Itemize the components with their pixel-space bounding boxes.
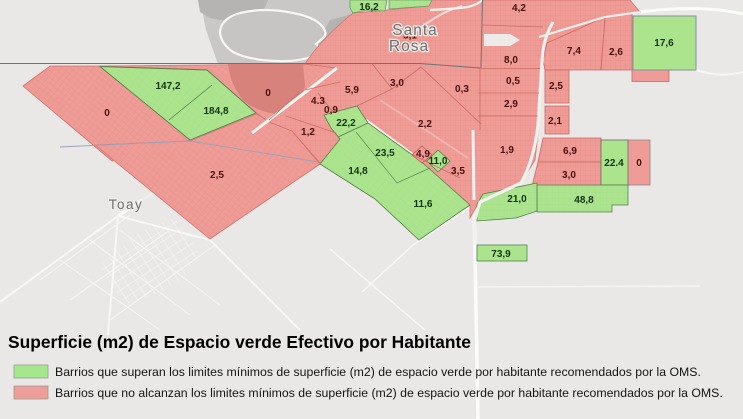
svg-text:184,8: 184,8 (203, 106, 228, 117)
svg-text:23,5: 23,5 (375, 148, 395, 159)
svg-text:5,9: 5,9 (345, 85, 359, 96)
svg-text:73,9: 73,9 (491, 249, 511, 260)
svg-text:11,6: 11,6 (414, 199, 433, 210)
svg-text:2,5: 2,5 (210, 170, 224, 181)
svg-text:0,3: 0,3 (455, 84, 469, 95)
svg-text:Santa: Santa (392, 22, 438, 39)
svg-text:0,9: 0,9 (324, 105, 338, 116)
svg-text:14,8: 14,8 (348, 166, 368, 177)
svg-text:3,5: 3,5 (451, 166, 465, 177)
svg-text:147,2: 147,2 (155, 81, 180, 92)
svg-text:6,9: 6,9 (563, 146, 577, 157)
svg-text:7,4: 7,4 (567, 46, 581, 57)
svg-text:Superficie (m2) de Espacio ver: Superficie (m2) de Espacio verde Efectiv… (8, 332, 471, 352)
svg-text:3,0: 3,0 (562, 170, 576, 181)
svg-text:16,2: 16,2 (359, 2, 379, 13)
svg-text:17,6: 17,6 (654, 38, 674, 49)
svg-text:8,0: 8,0 (504, 55, 518, 66)
svg-text:0: 0 (104, 108, 110, 119)
svg-text:48,8: 48,8 (574, 195, 594, 206)
svg-text:0: 0 (636, 158, 642, 169)
svg-text:2,5: 2,5 (549, 81, 563, 92)
svg-text:Barrios que superan los limite: Barrios que superan los limites mínimos … (55, 365, 701, 379)
svg-text:11,0: 11,0 (429, 156, 448, 167)
svg-text:Rosa: Rosa (389, 38, 429, 55)
svg-text:1,9: 1,9 (500, 145, 514, 156)
svg-text:2,6: 2,6 (609, 47, 623, 58)
svg-text:2,2: 2,2 (418, 119, 432, 130)
svg-text:1,2: 1,2 (301, 127, 315, 138)
svg-text:22,2: 22,2 (336, 118, 356, 129)
svg-text:4,2: 4,2 (512, 3, 526, 14)
svg-text:Toay: Toay (109, 197, 144, 212)
svg-text:Barrios que no alcanzan los li: Barrios que no alcanzan los limites míni… (55, 386, 723, 400)
svg-text:3,0: 3,0 (390, 78, 404, 89)
svg-text:21,0: 21,0 (507, 194, 527, 205)
svg-text:2,9: 2,9 (504, 99, 518, 110)
svg-text:2,1: 2,1 (548, 116, 562, 127)
svg-text:22.4: 22.4 (604, 158, 624, 169)
svg-text:0,5: 0,5 (506, 76, 520, 87)
svg-text:0: 0 (265, 88, 271, 99)
